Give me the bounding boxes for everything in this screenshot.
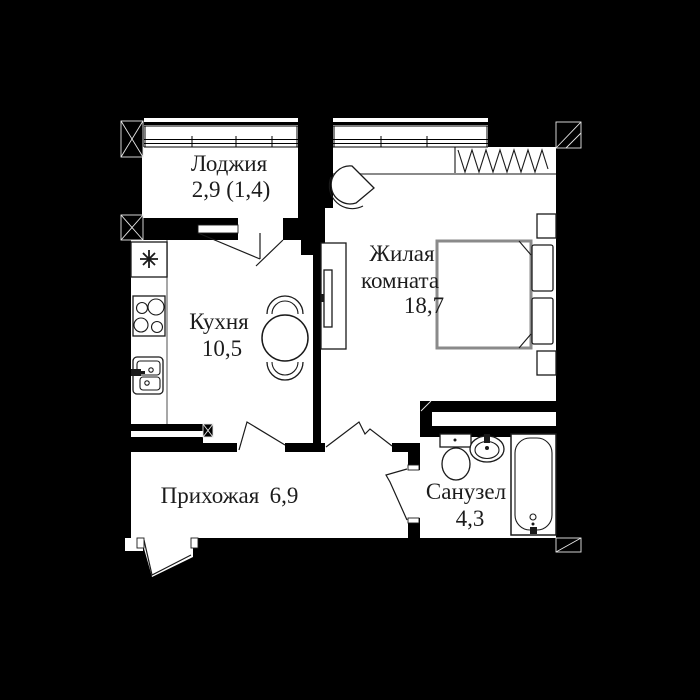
- room-area-loggia: 2,9 (1,4): [192, 177, 271, 202]
- floor-plan-svg: Лоджия 2,9 (1,4) Кухня 10,5 Жилая комнат…: [0, 0, 700, 700]
- room-area-kitchen: 10,5: [202, 336, 242, 361]
- kitchen-sink-icon: [131, 357, 163, 394]
- room-label-loggia: Лоджия: [191, 151, 268, 176]
- post-hatch-entry: [203, 424, 213, 437]
- room-label-bathroom: Санузел: [426, 479, 506, 504]
- floors: [125, 147, 556, 577]
- loggia-window-outer-face: [144, 118, 298, 122]
- pillow-icon: [532, 245, 553, 291]
- room-label-kitchen: Кухня: [189, 309, 249, 334]
- corner-hatch-top-right: [556, 122, 581, 148]
- corner-hatch-top-left: [121, 121, 143, 157]
- duct-shaft: [432, 412, 556, 426]
- nightstand-icon: [537, 214, 556, 238]
- living-door-opening: [325, 443, 392, 453]
- room-area-hallway: 6,9: [270, 483, 299, 508]
- hall-wall-inset: [131, 431, 203, 437]
- room-area-living: 18,7: [404, 293, 444, 318]
- dining-table-icon: [262, 315, 308, 361]
- room-area-bathroom: 4,3: [456, 506, 485, 531]
- tv-stand-icon: [321, 243, 346, 349]
- living-window-outer-face: [333, 118, 488, 122]
- balcony-window-icon: [198, 225, 238, 233]
- pillow-icon: [532, 298, 553, 344]
- room-label-living-1: Жилая: [369, 241, 435, 266]
- floor-plan: Лоджия 2,9 (1,4) Кухня 10,5 Жилая комнат…: [0, 0, 700, 700]
- room-label-living-2: комната: [361, 268, 439, 293]
- stove-icon: [133, 296, 165, 336]
- nightstand-icon: [537, 351, 556, 375]
- bathroom-door-opening: [408, 470, 420, 518]
- ventilation-icon: [131, 242, 167, 277]
- toilet-icon: [440, 434, 471, 480]
- tv-icon: [324, 270, 332, 327]
- corner-hatch-mid-left: [121, 215, 143, 240]
- corner-hatch-bottom-right: [556, 538, 581, 552]
- bathtub-icon: [511, 434, 556, 535]
- room-label-hallway: Прихожая: [161, 483, 260, 508]
- kitchen-door-opening: [237, 443, 285, 453]
